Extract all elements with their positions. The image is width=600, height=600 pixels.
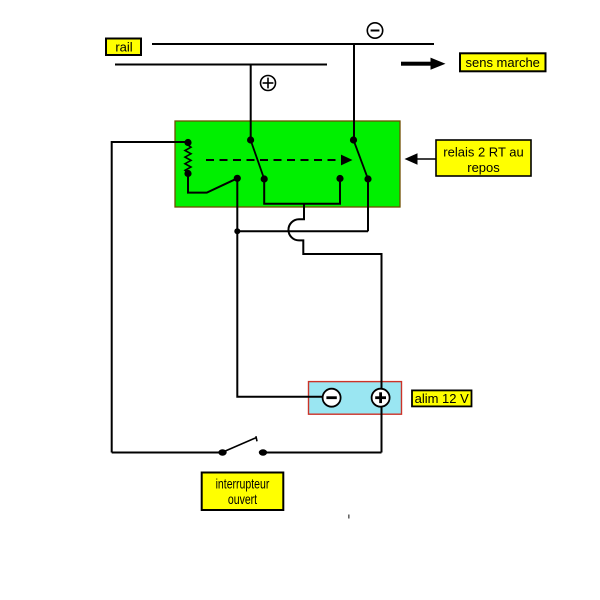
svg-text:relais 2 RT au: relais 2 RT au: [443, 145, 523, 160]
svg-text:alim 12 V: alim 12 V: [415, 391, 470, 406]
svg-text:sens marche: sens marche: [465, 55, 539, 70]
svg-text:repos: repos: [467, 160, 500, 175]
svg-text:interrupteur: interrupteur: [216, 476, 270, 492]
svg-text:ouvert: ouvert: [228, 492, 258, 508]
svg-text:rail: rail: [115, 40, 132, 55]
